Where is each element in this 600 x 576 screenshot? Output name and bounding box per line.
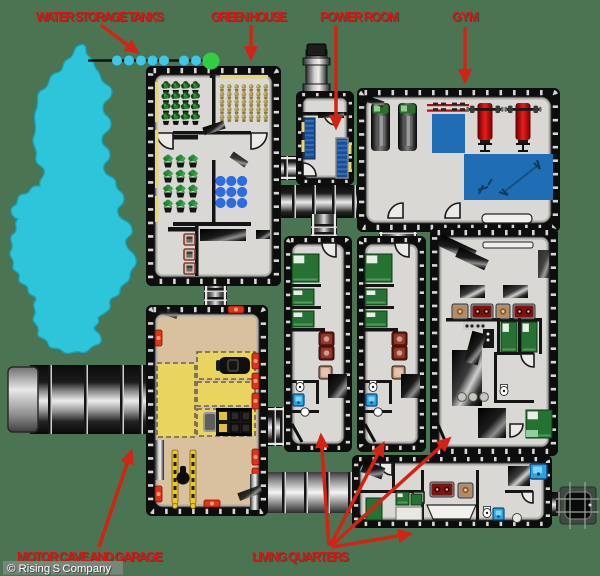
svg-text:© Rising S Company: © Rising S Company	[7, 563, 111, 575]
svg-text:POWER ROOM: POWER ROOM	[320, 10, 399, 24]
svg-text:LIVING QUARTERS: LIVING QUARTERS	[252, 550, 349, 564]
svg-text:GYM: GYM	[452, 10, 479, 24]
svg-text:GREEN HOUSE: GREEN HOUSE	[211, 10, 287, 24]
svg-text:WATER STORAGE TANKS: WATER STORAGE TANKS	[36, 10, 164, 24]
